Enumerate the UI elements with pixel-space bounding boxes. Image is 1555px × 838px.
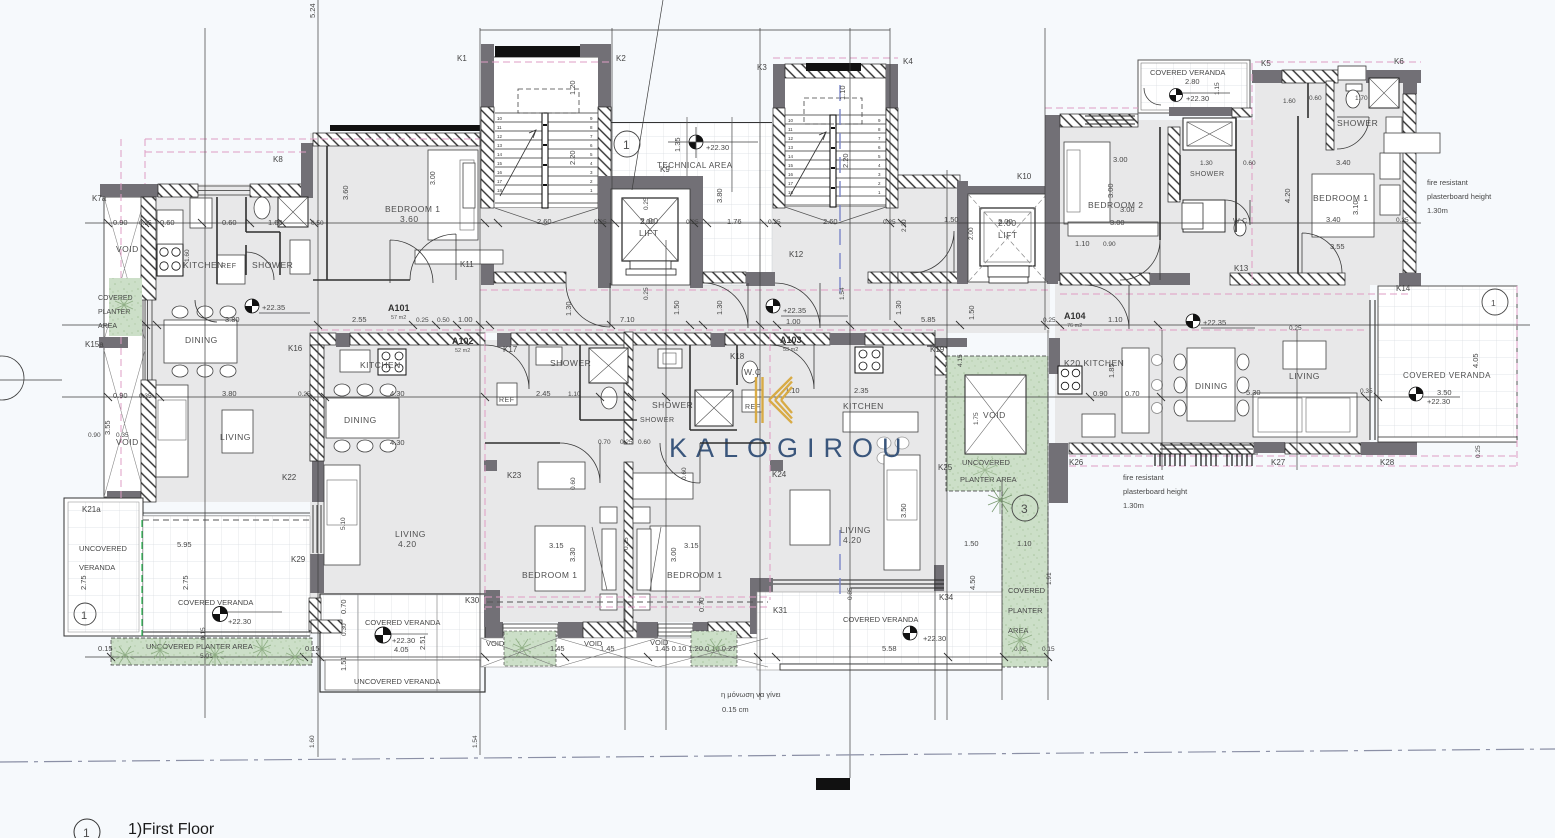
svg-text:2.30: 2.30 (901, 219, 908, 232)
svg-text:LIVING: LIVING (395, 529, 426, 539)
svg-text:3.15: 3.15 (549, 541, 564, 550)
svg-text:3.10: 3.10 (1351, 200, 1360, 215)
svg-text:1.10: 1.10 (1017, 539, 1032, 548)
svg-text:K2: K2 (616, 54, 626, 63)
svg-text:0.25: 0.25 (620, 439, 633, 446)
svg-text:KITCHEN: KITCHEN (843, 401, 884, 411)
svg-text:SHOWER: SHOWER (652, 400, 693, 410)
svg-text:0.60: 0.60 (681, 467, 688, 480)
svg-text:17: 17 (497, 179, 503, 184)
svg-text:+22.35: +22.35 (262, 303, 285, 312)
svg-text:2.45: 2.45 (536, 389, 551, 398)
svg-text:K22: K22 (282, 473, 297, 482)
svg-text:K9: K9 (660, 165, 670, 174)
svg-text:12: 12 (497, 134, 503, 139)
svg-text:1.50: 1.50 (964, 539, 979, 548)
svg-text:12: 12 (788, 136, 794, 141)
svg-text:DINING: DINING (185, 335, 218, 345)
svg-text:1.10: 1.10 (1075, 239, 1090, 248)
svg-text:3.00: 3.00 (1120, 205, 1135, 214)
svg-text:COVERED VERANDA: COVERED VERANDA (365, 618, 440, 627)
svg-text:4.20: 4.20 (843, 535, 862, 545)
svg-text:11: 11 (497, 125, 502, 130)
svg-text:plasterboard height: plasterboard height (1427, 192, 1492, 201)
svg-text:K15a: K15a (85, 340, 104, 349)
svg-text:52 m2: 52 m2 (455, 348, 470, 354)
svg-text:0.35: 0.35 (1360, 388, 1373, 395)
svg-text:0.25: 0.25 (1475, 445, 1482, 458)
svg-text:3.55: 3.55 (103, 420, 112, 435)
svg-text:A101: A101 (388, 303, 410, 313)
svg-text:0.15: 0.15 (200, 627, 207, 640)
svg-text:1.45: 1.45 (600, 644, 615, 653)
svg-text:1.35: 1.35 (673, 137, 682, 152)
svg-text:η μόνωση να γίνει: η μόνωση να γίνει (721, 690, 781, 699)
svg-text:KALOGIROU: KALOGIROU (669, 433, 911, 463)
svg-text:10: 10 (497, 116, 503, 121)
svg-text:13: 13 (788, 145, 794, 150)
svg-text:1.50: 1.50 (967, 305, 976, 320)
svg-text:0.60: 0.60 (1243, 160, 1256, 167)
svg-text:1.30: 1.30 (715, 300, 724, 315)
svg-text:LIVING: LIVING (220, 432, 251, 442)
svg-text:2.00: 2.00 (968, 227, 975, 240)
svg-text:14: 14 (497, 152, 503, 157)
svg-text:76 m2: 76 m2 (1067, 323, 1082, 329)
svg-text:SHOWER: SHOWER (1337, 118, 1378, 128)
svg-text:0.60: 0.60 (222, 218, 237, 227)
svg-text:0.90: 0.90 (113, 391, 128, 400)
svg-text:2.51: 2.51 (418, 635, 427, 650)
svg-text:UNCOVERED: UNCOVERED (79, 544, 128, 553)
svg-text:10: 10 (788, 118, 794, 123)
svg-text:3.30: 3.30 (568, 547, 577, 562)
svg-text:fire resistant: fire resistant (1123, 473, 1165, 482)
svg-text:1.75: 1.75 (973, 412, 980, 425)
svg-text:SHOWER: SHOWER (550, 358, 591, 368)
svg-text:PLANTER: PLANTER (98, 309, 130, 316)
svg-text:COVERED VERANDA: COVERED VERANDA (843, 615, 918, 624)
svg-text:1.85: 1.85 (1107, 363, 1116, 378)
svg-text:K8: K8 (273, 155, 283, 164)
svg-text:1.50: 1.50 (672, 300, 681, 315)
svg-text:5.95: 5.95 (177, 540, 192, 549)
svg-text:AREA: AREA (98, 323, 117, 330)
svg-text:1.50: 1.50 (944, 215, 959, 224)
svg-text:fire resistant: fire resistant (1427, 178, 1469, 187)
svg-text:4.15: 4.15 (957, 354, 964, 367)
svg-text:1.60: 1.60 (1283, 98, 1296, 105)
svg-text:0.25: 0.25 (594, 219, 607, 226)
svg-text:0.15: 0.15 (98, 644, 113, 653)
svg-text:BEDROOM 2: BEDROOM 2 (1088, 200, 1144, 210)
svg-text:5.58: 5.58 (882, 644, 897, 653)
svg-text:1.30: 1.30 (1200, 160, 1213, 167)
svg-text:1.15: 1.15 (1214, 82, 1221, 95)
svg-text:BEDROOM 1: BEDROOM 1 (522, 570, 578, 580)
svg-text:BEDROOM 1: BEDROOM 1 (385, 204, 441, 214)
svg-text:2.00: 2.00 (998, 217, 1013, 226)
svg-text:+22.35: +22.35 (783, 306, 806, 315)
svg-text:1.60: 1.60 (184, 249, 191, 262)
svg-text:18: 18 (497, 188, 503, 193)
svg-text:REF: REF (221, 263, 237, 270)
svg-text:K3: K3 (757, 63, 767, 72)
svg-text:16: 16 (788, 172, 794, 177)
svg-text:W.C: W.C (744, 367, 762, 377)
svg-text:1.30: 1.30 (564, 301, 573, 316)
svg-text:K29: K29 (291, 555, 306, 564)
svg-text:K10: K10 (1017, 172, 1032, 181)
svg-text:1.30m: 1.30m (1427, 206, 1448, 215)
svg-text:1.30m: 1.30m (1123, 501, 1144, 510)
svg-text:5.30: 5.30 (1246, 388, 1261, 397)
svg-text:13: 13 (497, 143, 503, 148)
svg-text:COVERED: COVERED (1008, 586, 1046, 595)
svg-text:2.20: 2.20 (841, 153, 850, 168)
svg-text:+22.30: +22.30 (923, 634, 946, 643)
svg-text:K25: K25 (938, 463, 953, 472)
svg-text:VOID: VOID (983, 410, 1006, 420)
svg-text:K16: K16 (288, 344, 303, 353)
svg-text:1.60: 1.60 (309, 735, 316, 748)
svg-text:4.30: 4.30 (390, 389, 405, 398)
svg-text:A103: A103 (780, 335, 802, 345)
svg-text:0.60: 0.60 (638, 439, 651, 446)
svg-text:K34: K34 (939, 593, 954, 602)
svg-text:1.00: 1.00 (786, 317, 801, 326)
svg-text:15: 15 (497, 161, 503, 166)
svg-text:1.10: 1.10 (568, 391, 581, 398)
svg-text:2.60: 2.60 (823, 217, 838, 226)
svg-text:SHOWER: SHOWER (1190, 171, 1225, 178)
svg-text:0.25: 0.25 (686, 219, 699, 226)
svg-text:4.50: 4.50 (968, 575, 977, 590)
svg-text:LIVING: LIVING (1289, 371, 1320, 381)
svg-text:K30: K30 (465, 596, 480, 605)
svg-text:KITCHEN: KITCHEN (360, 360, 401, 370)
svg-text:0.25: 0.25 (643, 197, 650, 210)
svg-text:11: 11 (788, 127, 793, 132)
svg-text:5.85: 5.85 (921, 315, 936, 324)
svg-text:3.40: 3.40 (1326, 215, 1341, 224)
svg-text:1: 1 (83, 826, 90, 838)
svg-text:0.70: 0.70 (1125, 389, 1140, 398)
svg-text:1.60: 1.60 (268, 218, 283, 227)
svg-text:VERANDA: VERANDA (79, 563, 115, 572)
svg-text:2.35: 2.35 (854, 386, 869, 395)
svg-text:BEDROOM 1: BEDROOM 1 (1313, 193, 1369, 203)
svg-text:17: 17 (788, 181, 794, 186)
svg-text:0.70: 0.70 (697, 597, 706, 612)
svg-text:0.60: 0.60 (160, 218, 175, 227)
svg-text:COVERED VERANDA: COVERED VERANDA (1403, 371, 1491, 380)
svg-text:BEDROOM 1: BEDROOM 1 (667, 570, 723, 580)
svg-text:LIFT: LIFT (998, 230, 1017, 240)
svg-text:0.50: 0.50 (437, 317, 450, 324)
svg-text:0.25: 0.25 (298, 391, 311, 398)
svg-text:COVERED VERANDA: COVERED VERANDA (1150, 68, 1225, 77)
svg-text:0.25: 0.25 (1289, 325, 1302, 332)
svg-text:2.80: 2.80 (1185, 77, 1200, 86)
svg-text:2.55: 2.55 (352, 315, 367, 324)
svg-text:K6: K6 (1394, 57, 1404, 66)
svg-text:0.15 cm: 0.15 cm (722, 705, 749, 714)
svg-text:0.25: 0.25 (883, 219, 896, 226)
svg-text:3.50: 3.50 (899, 503, 908, 518)
svg-text:DINING: DINING (344, 415, 377, 425)
svg-text:2.20: 2.20 (568, 150, 577, 165)
svg-text:K28: K28 (1380, 458, 1395, 467)
svg-text:K11: K11 (460, 260, 474, 269)
svg-text:0.60: 0.60 (570, 477, 577, 490)
svg-text:A104: A104 (1064, 311, 1086, 321)
svg-text:+22.35: +22.35 (1203, 318, 1226, 327)
svg-text:4.20: 4.20 (1283, 188, 1292, 203)
svg-text:K14: K14 (1396, 284, 1411, 293)
svg-text:0.90: 0.90 (1093, 389, 1108, 398)
svg-text:K13: K13 (1234, 264, 1249, 273)
svg-text:0.60: 0.60 (1309, 95, 1322, 102)
svg-text:0.85: 0.85 (847, 587, 854, 600)
svg-text:+22.30: +22.30 (1427, 397, 1450, 406)
svg-text:SHOWER: SHOWER (252, 260, 293, 270)
svg-text:1: 1 (623, 138, 630, 152)
svg-text:1.54: 1.54 (472, 735, 479, 748)
svg-text:PLANTER: PLANTER (1008, 606, 1043, 615)
svg-text:+22.30: +22.30 (1186, 94, 1209, 103)
svg-text:0.35: 0.35 (139, 393, 152, 400)
svg-text:5.10: 5.10 (340, 517, 347, 530)
svg-text:3.80: 3.80 (222, 389, 237, 398)
svg-text:PLANTER AREA: PLANTER AREA (960, 475, 1017, 484)
svg-text:K23: K23 (507, 471, 522, 480)
svg-text:3.60: 3.60 (400, 214, 419, 224)
svg-text:4.20: 4.20 (398, 539, 417, 549)
svg-text:0.25: 0.25 (643, 287, 650, 300)
svg-text:1.45: 1.45 (550, 644, 565, 653)
svg-text:K26: K26 (1069, 458, 1084, 467)
svg-text:K1: K1 (457, 54, 467, 63)
svg-text:0.90: 0.90 (88, 432, 101, 439)
svg-text:K12: K12 (789, 250, 804, 259)
svg-text:3.60: 3.60 (341, 185, 350, 200)
svg-text:+22.30: +22.30 (228, 617, 251, 626)
svg-text:4.05: 4.05 (1471, 353, 1480, 368)
svg-text:1: 1 (81, 610, 87, 622)
svg-text:2.60: 2.60 (537, 217, 552, 226)
svg-text:0.25: 0.25 (1396, 217, 1409, 224)
svg-text:57 m2: 57 m2 (391, 315, 406, 321)
svg-text:4.05: 4.05 (394, 645, 409, 654)
svg-text:UNCOVERED VERANDA: UNCOVERED VERANDA (354, 677, 440, 686)
svg-text:3.80: 3.80 (715, 188, 724, 203)
svg-text:3.15: 3.15 (684, 541, 699, 550)
svg-text:LIVING: LIVING (840, 525, 871, 535)
svg-text:1.10: 1.10 (1108, 315, 1123, 324)
svg-text:16: 16 (497, 170, 503, 175)
svg-text:0.15: 0.15 (1042, 646, 1055, 653)
svg-text:4.30: 4.30 (390, 438, 405, 447)
svg-text:REF: REF (499, 397, 515, 404)
svg-text:5.24: 5.24 (308, 3, 317, 18)
svg-text:1.91: 1.91 (1046, 572, 1053, 585)
svg-text:0.15: 0.15 (305, 644, 320, 653)
svg-text:0.90: 0.90 (113, 218, 128, 227)
svg-text:0.50: 0.50 (311, 220, 324, 227)
svg-text:AREA: AREA (1008, 626, 1028, 635)
svg-text:COVERED VERANDA: COVERED VERANDA (178, 598, 253, 607)
svg-text:1)First Floor: 1)First Floor (128, 821, 215, 838)
svg-text:3.40: 3.40 (1336, 158, 1351, 167)
svg-text:K7a: K7a (92, 194, 107, 203)
svg-text:3.50: 3.50 (1437, 388, 1452, 397)
svg-text:14: 14 (788, 154, 794, 159)
svg-text:K24: K24 (772, 470, 787, 479)
svg-text:K21a: K21a (82, 505, 101, 514)
svg-text:REF: REF (745, 404, 761, 411)
svg-text:3.00: 3.00 (669, 547, 678, 562)
svg-text:VOID: VOID (116, 244, 139, 254)
svg-text:2.75: 2.75 (79, 575, 88, 590)
svg-text:0.90: 0.90 (1103, 241, 1116, 248)
svg-text:LIFT: LIFT (639, 228, 658, 238)
svg-text:1.76: 1.76 (727, 217, 742, 226)
svg-text:1.10: 1.10 (838, 85, 847, 100)
svg-text:3.00: 3.00 (1110, 218, 1125, 227)
svg-text:18: 18 (788, 190, 794, 195)
svg-text:0.35: 0.35 (139, 220, 152, 227)
svg-text:0.25: 0.25 (1043, 317, 1056, 324)
svg-text:3.80: 3.80 (225, 315, 240, 324)
svg-text:DINING: DINING (1195, 381, 1228, 391)
svg-text:15: 15 (788, 163, 794, 168)
svg-text:3.00: 3.00 (430, 171, 437, 185)
svg-text:A102: A102 (452, 336, 474, 346)
svg-text:SHOWER: SHOWER (640, 417, 675, 424)
svg-text:1.54: 1.54 (839, 287, 846, 300)
svg-text:+22.30: +22.30 (706, 143, 729, 152)
svg-text:K31: K31 (773, 606, 788, 615)
svg-text:1.20: 1.20 (568, 80, 577, 95)
svg-text:1.70: 1.70 (1355, 95, 1368, 102)
svg-text:3.00: 3.00 (1106, 183, 1115, 198)
svg-text:0.70: 0.70 (339, 599, 348, 614)
svg-text:0.35: 0.35 (116, 432, 129, 439)
svg-text:2.00: 2.00 (640, 217, 655, 226)
svg-text:3.00: 3.00 (1113, 155, 1128, 164)
svg-text:+22.30: +22.30 (392, 636, 415, 645)
svg-text:3: 3 (1021, 502, 1028, 516)
svg-text:0.25: 0.25 (416, 317, 429, 324)
svg-text:K27: K27 (1271, 458, 1286, 467)
svg-text:plasterboard height: plasterboard height (1123, 487, 1188, 496)
svg-text:K19: K19 (930, 345, 945, 354)
svg-text:7.10: 7.10 (620, 315, 635, 324)
svg-text:2.75: 2.75 (181, 575, 190, 590)
svg-text:1.00: 1.00 (458, 315, 473, 324)
svg-text:K5: K5 (1261, 59, 1271, 68)
svg-text:1.51: 1.51 (339, 656, 348, 671)
svg-text:1.30: 1.30 (894, 300, 903, 315)
svg-text:UNCOVERED: UNCOVERED (962, 458, 1011, 467)
svg-text:K4: K4 (903, 57, 913, 66)
svg-text:0.25: 0.25 (768, 219, 781, 226)
svg-text:0.25: 0.25 (623, 537, 630, 550)
svg-text:1: 1 (1491, 298, 1496, 308)
